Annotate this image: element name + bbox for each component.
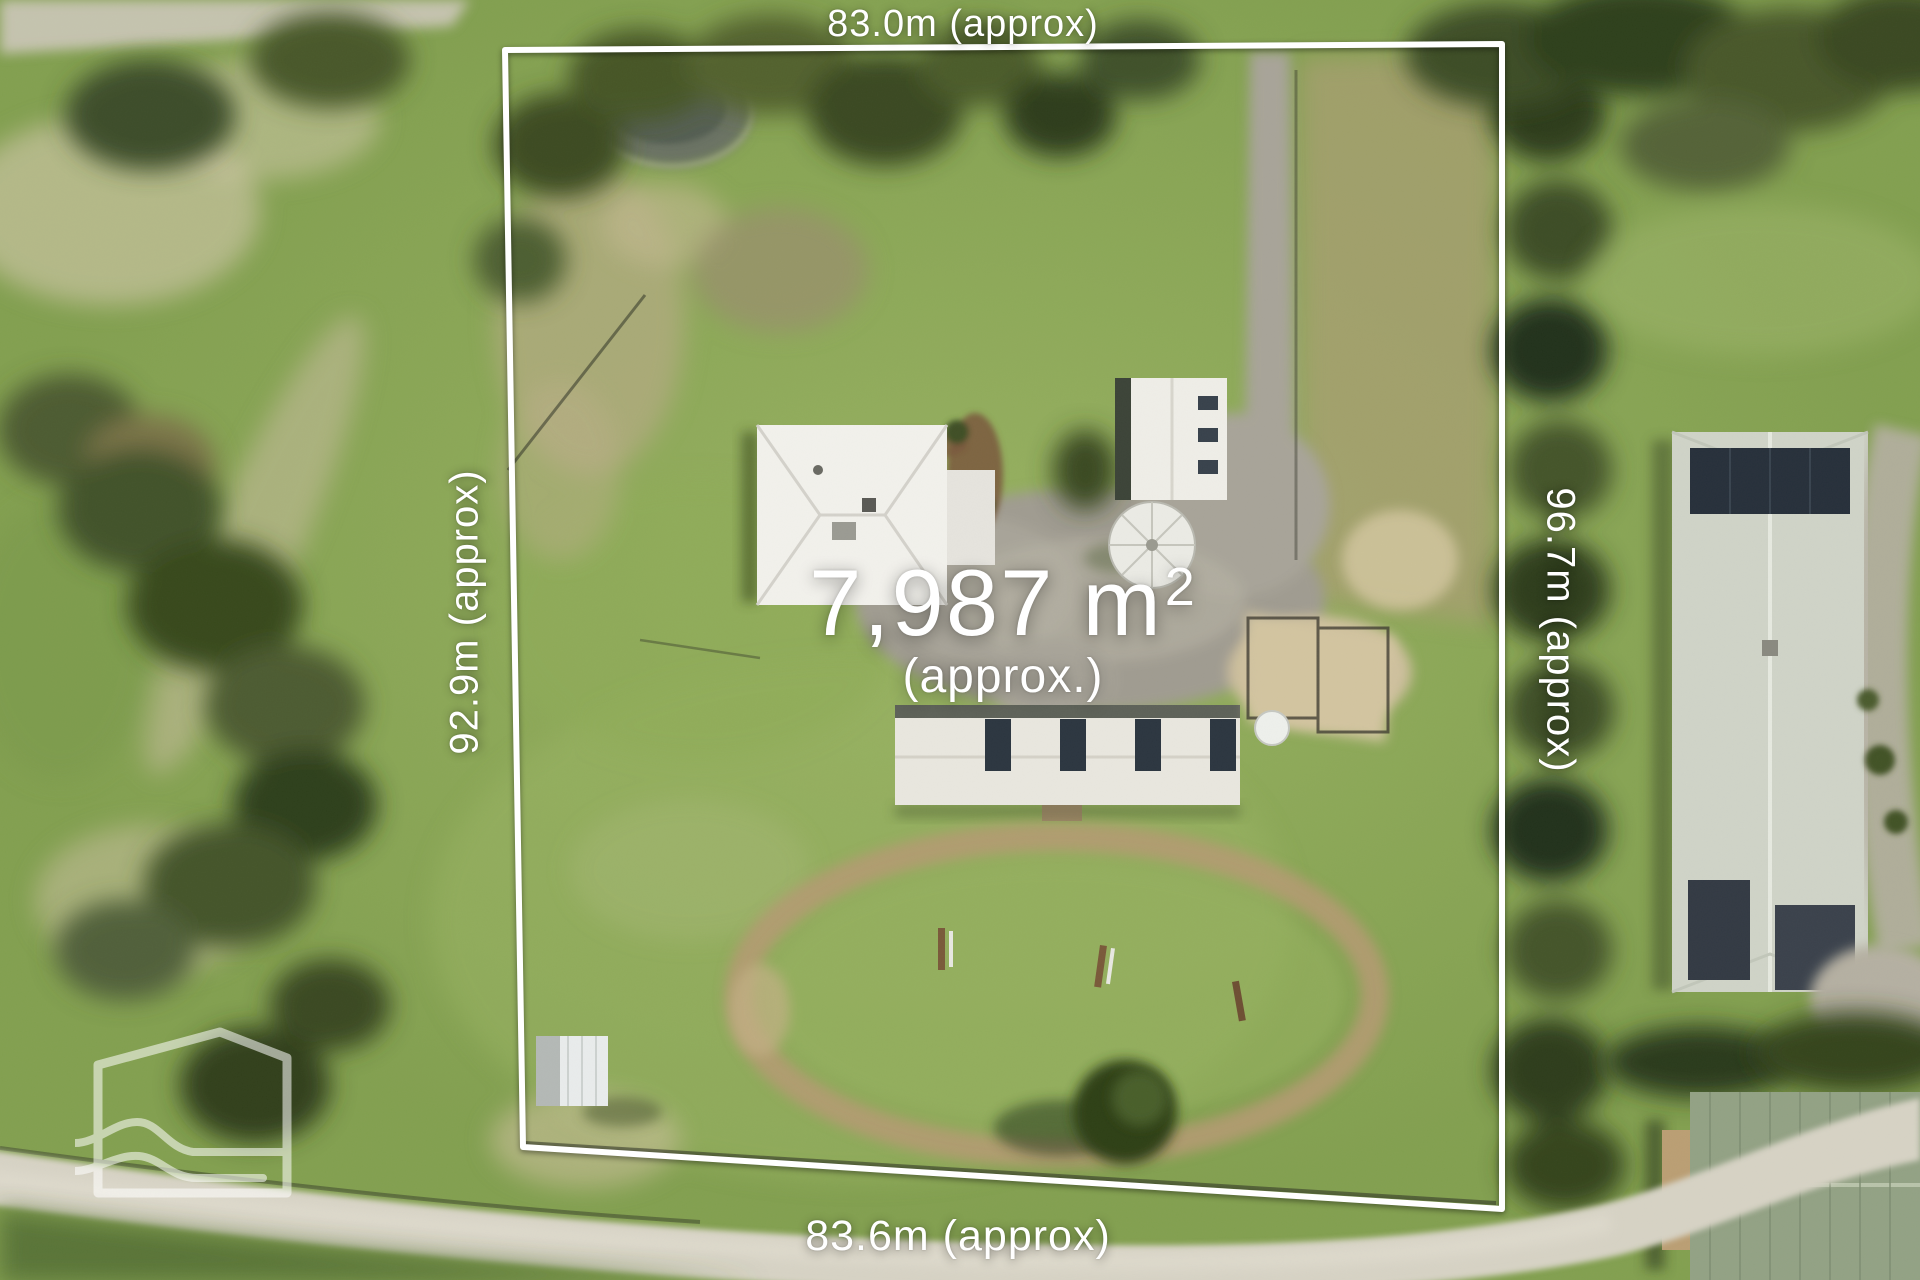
dimension-label-right: 96.7m (approx)	[1538, 487, 1583, 772]
dimension-label-top: 83.0m (approx)	[827, 3, 1099, 46]
land-area-value: 7,987 m2	[809, 556, 1197, 650]
aerial-property-photo: 83.0m (approx) 83.6m (approx) 92.9m (app…	[0, 0, 1920, 1280]
house-with-waves-logo-icon	[75, 1032, 287, 1193]
land-area-qualifier: (approx.)	[809, 652, 1197, 702]
dimension-label-bottom: 83.6m (approx)	[805, 1212, 1111, 1261]
agency-watermark	[75, 1022, 305, 1207]
dimension-label-left: 92.9m (approx)	[443, 469, 488, 754]
land-area-superscript: 2	[1165, 560, 1197, 614]
land-area-number: 7,987 m	[809, 550, 1163, 655]
land-area-annotation: 7,987 m2 (approx.)	[809, 556, 1197, 702]
